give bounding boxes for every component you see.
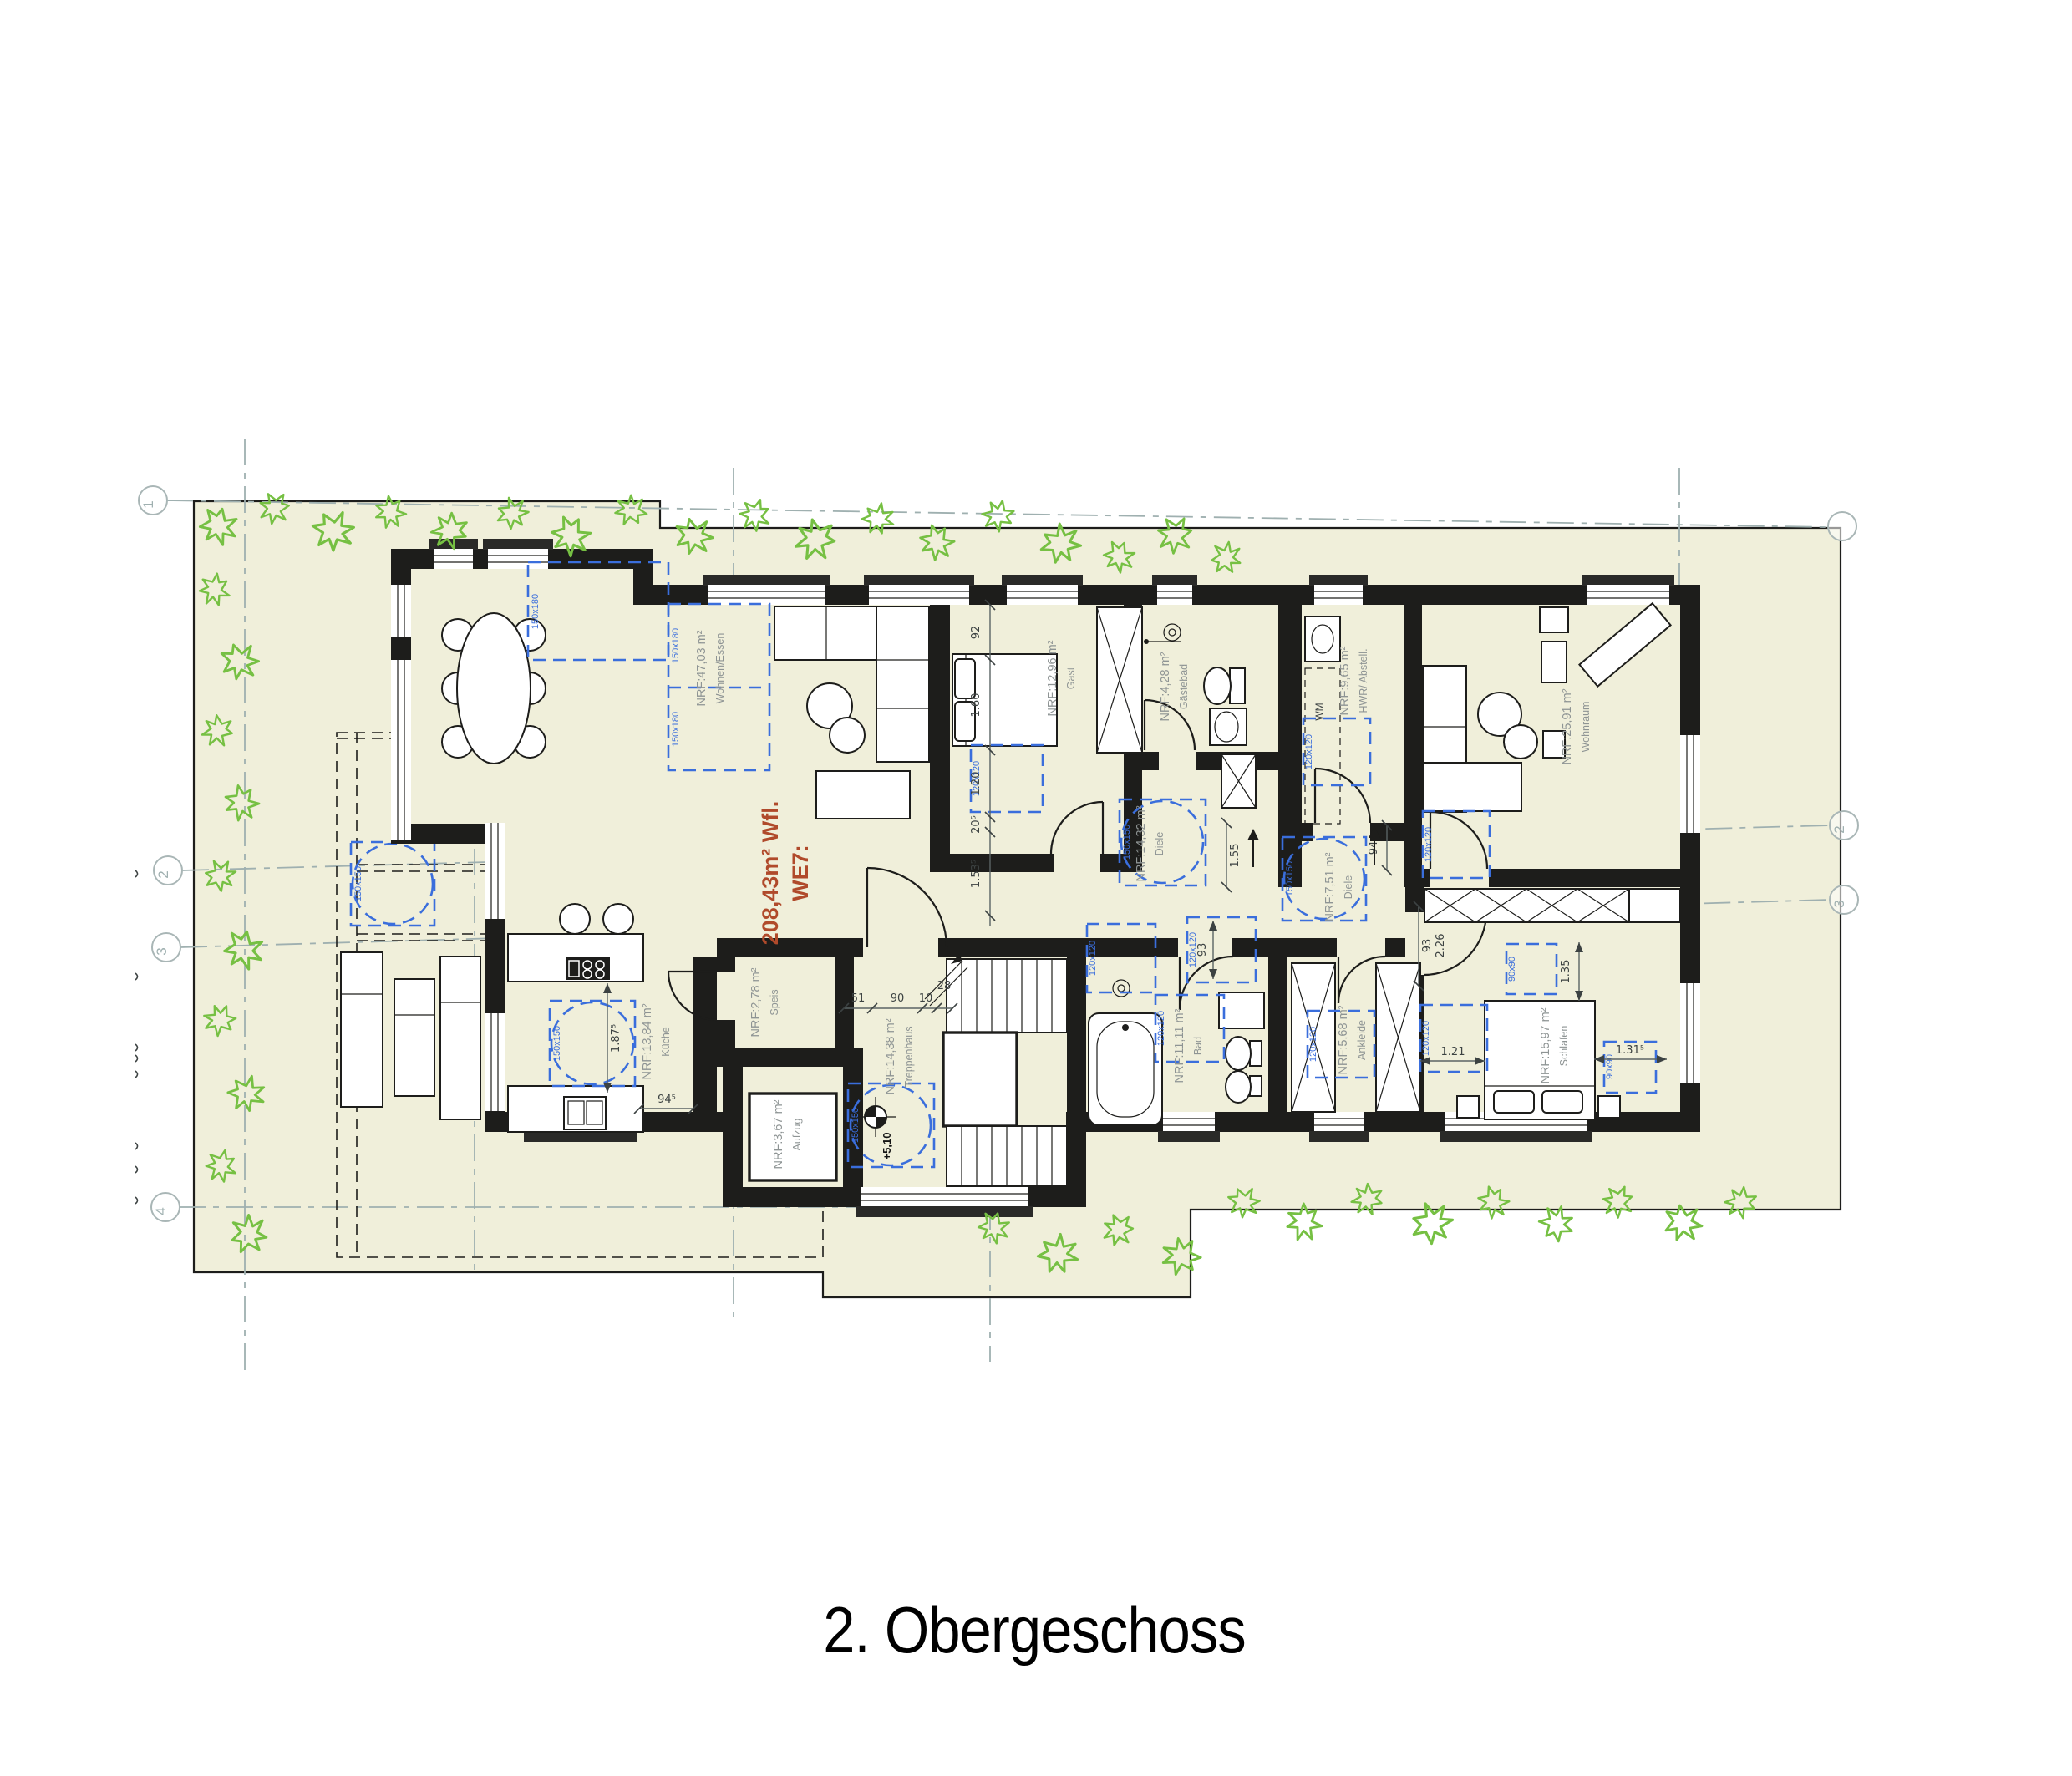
level-label: +5,10 [881, 1133, 893, 1160]
svg-text:120x120: 120x120 [1421, 1021, 1431, 1056]
left-dim-ticks [135, 870, 138, 1204]
bed-gast [952, 654, 1057, 746]
grid-label-1: 1 [140, 500, 156, 508]
svg-text:208,43m² Wfl.: 208,43m² Wfl. [758, 801, 783, 946]
svg-text:Diele: Diele [1154, 832, 1165, 856]
wardrobe-schlafen [1424, 889, 1680, 922]
svg-text:Küche: Küche [660, 1027, 672, 1056]
svg-text:1.87⁵: 1.87⁵ [610, 1024, 622, 1053]
svg-text:NRF:12,96 m²: NRF:12,96 m² [1046, 640, 1059, 716]
svg-text:NRF:4,28 m²: NRF:4,28 m² [1159, 652, 1172, 721]
svg-text:93: 93 [1421, 939, 1434, 953]
toilet-gaestebad [1204, 667, 1245, 704]
bathtub [1089, 1013, 1162, 1125]
svg-text:20⁵: 20⁵ [970, 815, 983, 834]
floor-plan-canvas: 150x150 NRF:149,55 m² Terrasse [0, 0, 2072, 1776]
svg-text:NRF:9,65 m²: NRF:9,65 m² [1338, 646, 1352, 715]
svg-text:120x120: 120x120 [1156, 1011, 1166, 1046]
svg-text:NRF:13,84 m²: NRF:13,84 m² [641, 1003, 654, 1079]
svg-text:Speis: Speis [769, 989, 780, 1015]
svg-text:Ankleide: Ankleide [1356, 1020, 1368, 1060]
svg-text:WE7:: WE7: [788, 845, 813, 901]
svg-text:1.60: 1.60 [970, 693, 983, 718]
svg-text:28: 28 [937, 980, 952, 992]
svg-text:90: 90 [891, 992, 905, 1005]
svg-text:NRF:3,67 m²: NRF:3,67 m² [772, 1099, 785, 1169]
svg-text:NRF:2,78 m²: NRF:2,78 m² [749, 967, 763, 1037]
svg-text:10: 10 [919, 992, 933, 1005]
wardrobe-gast [1097, 607, 1142, 753]
dining-table [442, 613, 546, 764]
svg-text:NRF:14,32 m²: NRF:14,32 m² [1135, 805, 1148, 881]
svg-text:Gästebad: Gästebad [1178, 664, 1190, 709]
svg-text:HWR/ Abstell.: HWR/ Abstell. [1358, 648, 1369, 713]
svg-text:Diele: Diele [1343, 875, 1354, 900]
svg-text:NRF:5,68 m²: NRF:5,68 m² [1337, 1005, 1350, 1074]
grid-label-4: 4 [153, 1207, 169, 1215]
svg-text:Wohnraum: Wohnraum [1580, 702, 1592, 753]
svg-text:1.53⁵: 1.53⁵ [970, 860, 983, 888]
svg-text:Schlafen: Schlafen [1558, 1026, 1570, 1067]
svg-text:2. Obergeschoss: 2. Obergeschoss [823, 1593, 1246, 1667]
grid-label-2: 2 [155, 870, 171, 878]
drawing-title: 2. Obergeschoss [823, 1593, 1246, 1667]
svg-text:150x150: 150x150 [1122, 825, 1132, 860]
svg-text:120x120: 120x120 [1308, 1027, 1318, 1062]
svg-text:120x120: 120x120 [1088, 941, 1098, 976]
svg-text:92: 92 [970, 626, 983, 640]
svg-text:Treppenhaus: Treppenhaus [903, 1026, 915, 1087]
grid-label-3: 3 [154, 947, 170, 955]
svg-text:NRF:7,51 m²: NRF:7,51 m² [1323, 852, 1337, 921]
svg-text:150x150: 150x150 [851, 1108, 861, 1143]
svg-text:90x90: 90x90 [1605, 1054, 1615, 1079]
svg-text:93: 93 [1196, 943, 1209, 957]
svg-text:150x150: 150x150 [552, 1026, 562, 1061]
svg-text:NRF:15,97 m²: NRF:15,97 m² [1539, 1007, 1552, 1083]
grid-label-right-3: 3 [1831, 900, 1847, 907]
svg-text:Wohnen/Essen: Wohnen/Essen [714, 633, 726, 704]
svg-text:NRF:25,91 m²: NRF:25,91 m² [1561, 688, 1574, 764]
grid-bubble-right-1 [1828, 512, 1856, 540]
svg-text:150x180: 150x180 [671, 628, 681, 663]
svg-text:90x90: 90x90 [1507, 957, 1517, 982]
svg-text:94⁵: 94⁵ [658, 1094, 676, 1106]
svg-text:Aufzug: Aufzug [791, 1118, 803, 1150]
size-marker-label: 150x150 [353, 866, 363, 901]
svg-text:1.35: 1.35 [1560, 960, 1572, 984]
svg-text:Gast: Gast [1065, 667, 1077, 689]
svg-text:120x120: 120x120 [1424, 827, 1434, 862]
floor-plan-drawing: 150x150 NRF:149,55 m² Terrasse [0, 0, 2072, 1776]
svg-text:2.26: 2.26 [1435, 934, 1447, 958]
svg-text:1.31⁵: 1.31⁵ [1616, 1044, 1644, 1057]
svg-text:150x150: 150x150 [1285, 861, 1295, 896]
svg-text:120x120: 120x120 [1304, 734, 1314, 769]
svg-text:150x180: 150x180 [531, 594, 541, 629]
svg-text:150x180: 150x180 [671, 712, 681, 747]
svg-text:51: 51 [851, 992, 866, 1005]
svg-text:NRF:11,11 m²: NRF:11,11 m² [1173, 1008, 1186, 1083]
sink-gaestebad [1210, 708, 1247, 745]
svg-text:1.20: 1.20 [970, 772, 983, 796]
svg-text:1.55: 1.55 [1229, 844, 1242, 868]
svg-text:NRF:47,03 m²: NRF:47,03 m² [695, 630, 708, 706]
svg-text:Bad: Bad [1192, 1037, 1204, 1055]
svg-text:NRF:14,38 m²: NRF:14,38 m² [884, 1018, 897, 1094]
svg-text:1.21: 1.21 [1441, 1046, 1465, 1058]
svg-text:+5,10: +5,10 [881, 1133, 893, 1160]
duct-shaft [1221, 754, 1256, 808]
grid-label-right-2: 2 [1831, 825, 1847, 833]
